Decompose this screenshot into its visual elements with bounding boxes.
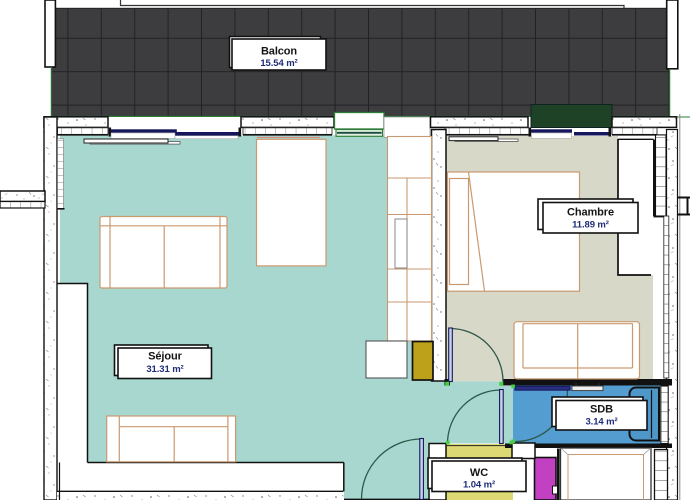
svg-text:3.14 m²: 3.14 m² xyxy=(585,417,617,428)
svg-text:15.54 m²: 15.54 m² xyxy=(260,58,297,69)
svg-text:1.04 m²: 1.04 m² xyxy=(463,480,495,491)
svg-text:Séjour: Séjour xyxy=(148,351,182,363)
svg-text:Balcon: Balcon xyxy=(261,46,297,58)
svg-text:31.31 m²: 31.31 m² xyxy=(146,364,183,375)
svg-text:Chambre: Chambre xyxy=(567,207,614,219)
svg-text:SDB: SDB xyxy=(590,404,613,416)
svg-text:WC: WC xyxy=(470,467,488,479)
svg-text:11.89 m²: 11.89 m² xyxy=(572,220,609,231)
